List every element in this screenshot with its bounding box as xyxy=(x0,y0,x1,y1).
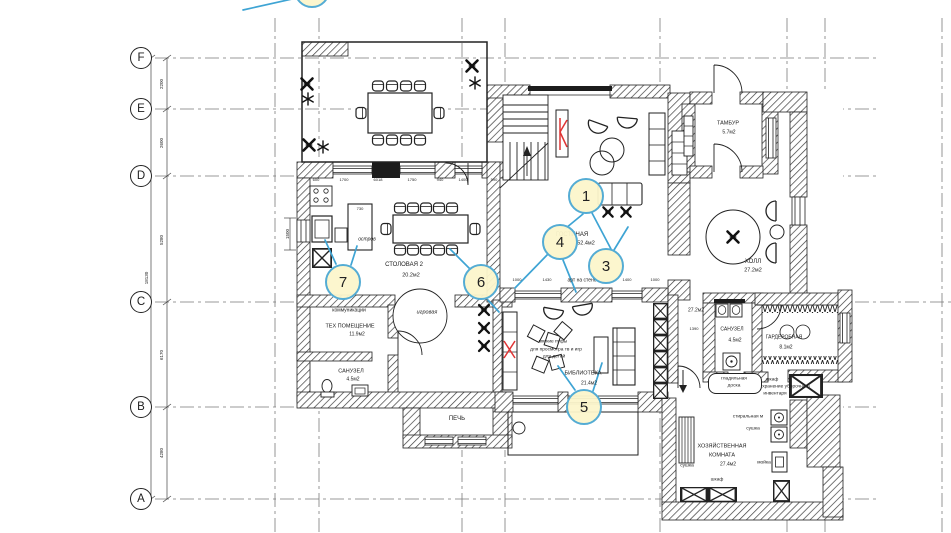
room-area-living: 52.4м2 xyxy=(577,241,595,247)
marker-number: 4 xyxy=(556,234,564,251)
marker-4[interactable]: 4 xyxy=(542,224,578,260)
room-label-wardrobe: ГАРДЕРОБНАЯ xyxy=(766,336,802,341)
dim-left-2: 2600 xyxy=(160,138,165,148)
annotation-communications: коммуникации xyxy=(332,309,366,314)
dim-kitchen-3: 6018 xyxy=(374,178,383,182)
grid-bubble-a: A xyxy=(130,488,152,510)
marker-3[interactable]: 3 xyxy=(588,248,624,284)
annotation-ironing-2: доска xyxy=(728,385,741,390)
dim-kitchen-7: 590 xyxy=(491,178,498,182)
dim-left-3: 5280 xyxy=(160,235,165,245)
dim-left-4: 6170 xyxy=(160,350,165,360)
annotation-wardrobe-small: шкаф xyxy=(711,479,724,484)
annotation-closet-1: шкаф xyxy=(766,379,779,384)
dim-kitchen-2: 1700 xyxy=(340,178,349,182)
room-label-utility-2: КОМНАТА xyxy=(709,453,735,459)
dim-kitchen-6: 1400 xyxy=(459,178,468,182)
dim-kitchen-1: 600 xyxy=(313,178,320,182)
room-area-hall-2: 27.2м2 xyxy=(688,309,704,314)
annotation-poufs-2: для просмотра тв и игр xyxy=(530,349,582,354)
annotation-ironing-1: гладильная xyxy=(721,378,747,383)
room-label-tech: ТЕХ ПОМЕЩЕНИЕ xyxy=(325,324,374,330)
marker-5[interactable]: 5 xyxy=(566,389,602,425)
marker-1[interactable]: 1 xyxy=(568,178,604,214)
room-label-library: БИБЛИОТЕКА xyxy=(565,371,602,377)
room-area-hall: 27.2м2 xyxy=(744,268,762,274)
room-area-tech: 11.9м2 xyxy=(349,333,365,338)
room-label-hall: ХОЛЛ xyxy=(745,259,761,265)
dim-living-2: 1430 xyxy=(543,278,552,282)
annotation-poufs-3: для детей xyxy=(543,356,565,361)
room-label-tambour: ТАМБУР xyxy=(717,121,739,127)
annotation-dryer: сушка xyxy=(746,428,760,433)
floor-plan-page: F E D C B A 2200 2600 5280 6170 4280 181… xyxy=(0,0,951,533)
marker-number: 3 xyxy=(602,258,610,275)
annotation-dryer-2: сушка xyxy=(680,465,694,470)
dim-island: 730 xyxy=(357,207,364,211)
annotation-art-wall: арт на стене xyxy=(567,279,596,284)
grid-label: F xyxy=(137,52,144,64)
grid-label: B xyxy=(137,401,145,413)
room-label-playzone: игровая xyxy=(417,310,438,316)
room-area-dining2: 20.2м2 xyxy=(402,273,420,279)
room-label-bath2: САНУЗЕЛ xyxy=(720,328,743,333)
room-area-bath1: 4.5м2 xyxy=(346,378,359,383)
dim-living-3: 1400 xyxy=(623,278,632,282)
annotation-closet-3: инвентаря xyxy=(763,393,786,398)
marker-number: 7 xyxy=(339,274,347,291)
dim-kitchen-4: 1750 xyxy=(408,178,417,182)
room-label-utility-1: ХОЗЯЙСТВЕННАЯ xyxy=(697,444,746,450)
annotation-island: остров xyxy=(358,238,376,243)
marker-number: 1 xyxy=(582,188,590,205)
grid-bubble-e: E xyxy=(130,98,152,120)
dim-hall: 1390 xyxy=(690,327,699,331)
grid-label: E xyxy=(137,103,145,115)
dim-left-total: 18130 xyxy=(145,272,150,285)
dim-living-4: 1000 xyxy=(651,278,660,282)
marker-number: 6 xyxy=(477,274,485,291)
marker-number: 5 xyxy=(580,399,588,416)
grid-label: D xyxy=(137,170,145,182)
room-area-utility: 27.4м2 xyxy=(720,463,736,468)
room-area-bath2: 4.5м2 xyxy=(728,339,741,344)
room-label-stove: ПЕЧЬ xyxy=(449,416,465,422)
dim-living-1: 1000 xyxy=(513,278,522,282)
marker-6[interactable]: 6 xyxy=(463,264,499,300)
grid-bubble-c: C xyxy=(130,291,152,313)
marker-7[interactable]: 7 xyxy=(325,264,361,300)
grid-label: A xyxy=(137,493,145,505)
room-label-bath1: САНУЗЕЛ xyxy=(338,369,363,375)
annotation-closet-2: хранение уборочного xyxy=(762,386,810,391)
grid-label: C xyxy=(137,296,145,308)
annotation-sink: мойка xyxy=(757,462,771,467)
grid-bubble-b: B xyxy=(130,396,152,418)
dim-kitchen-5: 940 xyxy=(437,178,444,182)
annotation-washer: стиральная м xyxy=(733,416,763,421)
room-area-tambour: 5.7м2 xyxy=(722,131,735,136)
annotation-poufs-1: мягкие пуфы xyxy=(539,341,568,346)
dim-left-1: 2200 xyxy=(160,79,165,89)
dim-left-5: 4280 xyxy=(160,448,165,458)
room-label-dining2: СТОЛОВАЯ 2 xyxy=(385,262,423,268)
grid-bubble-f: F xyxy=(130,47,152,69)
dim-stair-width: 1500 xyxy=(286,229,291,239)
grid-bubble-d: D xyxy=(130,165,152,187)
room-area-library: 21.4м2 xyxy=(581,382,597,387)
room-area-wardrobe: 8.1м2 xyxy=(779,346,792,351)
